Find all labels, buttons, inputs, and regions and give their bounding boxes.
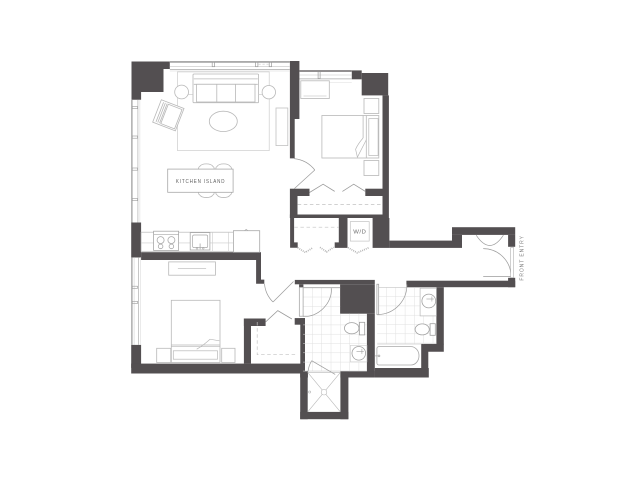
svg-text:KITCHEN ISLAND: KITCHEN ISLAND (176, 179, 226, 185)
svg-text:W/D: W/D (353, 230, 366, 236)
svg-text:FRONT ENTRY: FRONT ENTRY (520, 235, 526, 281)
